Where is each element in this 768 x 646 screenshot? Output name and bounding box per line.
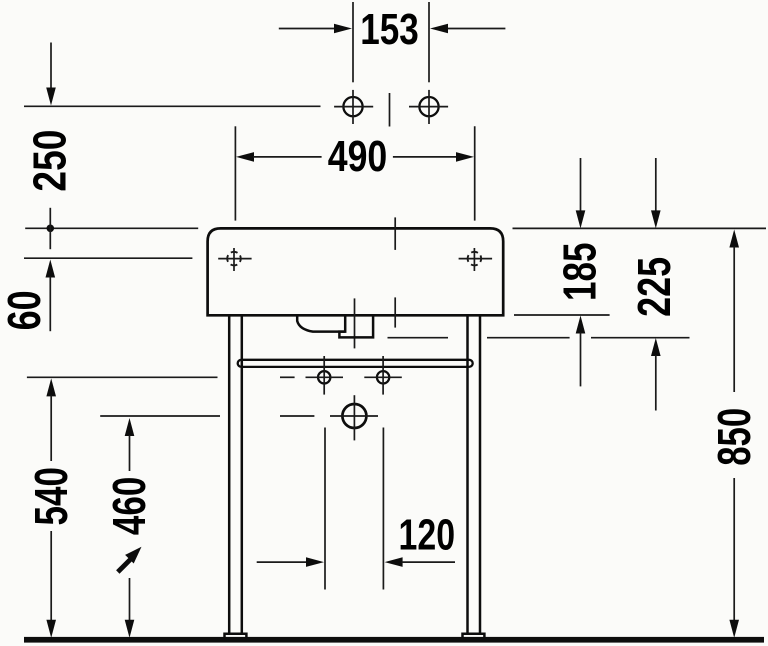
svg-text:60: 60 bbox=[0, 290, 50, 330]
svg-text:460: 460 bbox=[103, 477, 155, 535]
svg-text:490: 490 bbox=[328, 132, 388, 181]
svg-text:250: 250 bbox=[24, 130, 76, 192]
svg-text:225: 225 bbox=[628, 257, 680, 317]
svg-text:540: 540 bbox=[25, 467, 77, 526]
svg-text:185: 185 bbox=[554, 243, 606, 302]
svg-text:850: 850 bbox=[708, 408, 760, 466]
svg-text:120: 120 bbox=[399, 510, 456, 559]
svg-text:153: 153 bbox=[360, 5, 419, 54]
